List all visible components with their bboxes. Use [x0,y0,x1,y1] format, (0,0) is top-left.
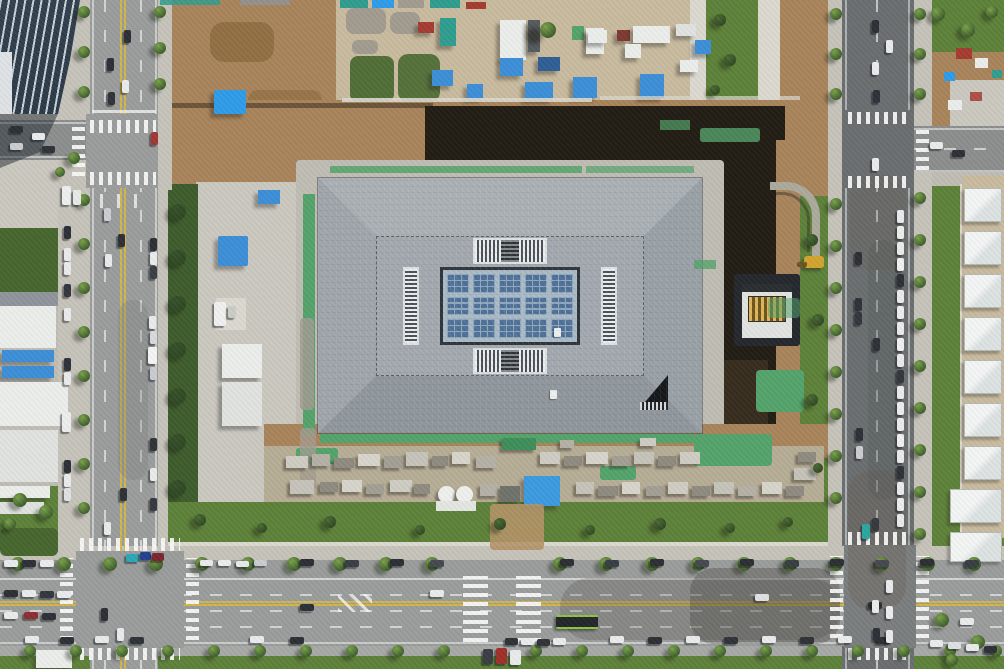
yard-green [0,228,58,292]
street-tree [725,523,735,533]
stack [576,482,594,494]
net-stack [572,26,584,40]
street-tree [806,394,818,406]
netting-patch [768,298,800,318]
netting-patch [296,448,338,464]
east-shed [964,446,1002,480]
rubble-pile [346,8,386,34]
stack [640,438,656,446]
container [430,0,460,8]
netting-patch [660,120,690,130]
blue-tarp [214,90,246,114]
blue-shed [500,58,523,76]
east-shed [964,188,1002,222]
east-shed [964,360,1002,394]
green-patch [350,56,394,102]
netting-patch [600,466,636,480]
east-wall [960,184,964,570]
stack [390,480,412,492]
dirt-mound [248,90,322,120]
container-white [216,298,246,330]
highrise-white-wing [0,52,12,114]
dirt-field-nw [160,0,550,128]
blue-shed [573,77,597,98]
rubble-pile [352,40,378,54]
stack [786,486,804,496]
street-tree [13,493,27,507]
main-building-roof [318,178,702,433]
silo [438,486,455,503]
street-tree [986,6,998,18]
stack [414,484,430,494]
east-side-road [914,126,1004,172]
site-office-white [633,26,670,43]
shed-navy [538,57,560,71]
debris-teal [992,70,1002,78]
blue-shed-laydown [524,476,560,506]
silo [456,486,473,503]
machine-green [502,438,536,450]
laydown-yard [264,446,824,538]
rubble-pile [390,12,420,34]
street-tree [714,14,726,26]
street-tree [39,505,53,519]
street-tree [812,314,824,326]
blue-tarp [258,190,280,204]
trench-shadow-line [163,103,433,108]
container [340,0,368,8]
debris-white [948,100,962,110]
stack [564,456,582,466]
left-road-east-sidewalk [158,0,172,190]
stack [680,452,700,464]
blue-shed [467,84,483,99]
dark-unit [500,486,520,502]
aerial-construction-site-photo [0,0,1004,669]
right-road-south-stub [842,646,914,669]
east-shed [964,317,1002,351]
rubble-row [300,428,316,490]
site-office-white [586,28,604,54]
netting-patch [700,128,760,142]
container-white [222,382,262,426]
stack [658,456,676,466]
site-wall [342,98,592,102]
nw-ground-white [690,0,812,120]
warehouse-white [0,430,58,482]
building-white-panel [0,306,56,348]
street-tree [170,342,186,358]
street-tree [170,480,186,496]
stack [334,458,354,468]
blue-roof-row [2,366,54,378]
container-white [222,344,262,378]
street-tree [540,22,556,38]
street-tree [170,388,186,404]
netting-strip [320,434,694,443]
pit-structure-frame [734,274,800,346]
stack [312,454,330,466]
street-tree [324,516,336,528]
pit-structure-louver [748,296,786,322]
street-tree [783,517,793,527]
patch [214,302,226,326]
shed-white [0,502,44,514]
stack [646,486,664,496]
stack [342,480,362,492]
street-tree [194,514,206,526]
patch [228,306,236,318]
east-shed [964,231,1002,265]
stack [586,452,608,464]
silo-base [436,501,476,511]
staging-ground [336,0,806,118]
east-shed [964,403,1002,437]
stack [290,480,314,494]
stack [480,484,498,496]
stack [622,482,640,494]
container [398,0,424,8]
stack [668,482,688,494]
street-tree [170,204,186,220]
blue-shed [640,74,664,98]
blue-shed [695,40,711,54]
stack [560,440,574,448]
building-frame [0,292,58,306]
stack [598,486,618,496]
street-tree [170,296,186,312]
stack [738,486,756,496]
stack [286,456,308,468]
stack [612,456,630,466]
blue-roof-row [2,350,54,362]
bottom-road-north-sidewalk [0,546,1004,560]
stack [714,482,734,494]
retaining-wall-rib [776,192,810,252]
street-tree [724,54,736,66]
netting-patch [694,434,772,466]
site-office-white [500,20,526,60]
pit-structure-inner [742,284,792,338]
street-tree [710,85,720,95]
street-tree [257,523,267,533]
street-tree [654,518,666,530]
debris-red [956,48,972,59]
east-shed [950,489,1002,523]
netting-strip [303,194,315,434]
left-road-south-stub [90,646,158,669]
stack [794,468,816,480]
dirt-mound [210,22,274,62]
container [372,0,394,8]
excavator-arm [797,262,807,267]
street-tree [813,463,823,473]
machine-teal [440,18,456,46]
debris-blue [944,72,955,81]
stack [366,484,384,494]
street-tree [931,7,945,21]
stack [762,482,782,494]
ne-grass-corner [922,0,1004,56]
stack [540,452,560,464]
stack [798,452,816,462]
green-patch [398,54,440,102]
stack [406,452,428,466]
stack [476,456,496,468]
sheds-ground-east [962,176,1004,580]
grass-slope-south [156,502,850,552]
stack [320,482,338,492]
bottom-road [0,560,1004,646]
dirt-path-to-crossing [490,504,544,550]
site-office-white [676,24,696,36]
street-tree [170,434,186,450]
debris-red [970,92,982,101]
shed-white [588,30,607,43]
blue-shed [525,82,553,100]
netting-strip [586,166,694,173]
debris-white [975,58,988,68]
container-darkred [617,30,630,41]
stack [432,456,448,466]
curved-retaining-wall [770,182,820,258]
shed-white [0,486,50,498]
street-tree [585,525,595,535]
street-tree [494,518,506,530]
street-tree [4,518,16,530]
container [466,2,486,9]
fence-top [240,0,290,5]
stack [634,452,654,464]
site-wall [600,96,800,100]
pit-structure-top [742,284,792,292]
east-shed [964,274,1002,308]
stack [384,456,402,468]
blue-shed [432,70,453,86]
blue-tarp [218,236,248,266]
stack [692,486,710,496]
netting-strip [330,166,582,173]
shed-white [625,44,641,58]
netting-patch [756,370,804,412]
street-tree [170,250,186,266]
shed-white [680,60,698,72]
tower-dark [528,20,540,52]
container-red [418,22,434,33]
stack [452,452,470,464]
street-tree [415,525,425,535]
stack [358,454,380,466]
roof-panel-texture [318,178,702,433]
street-tree [961,23,975,37]
rubble-row [300,318,314,410]
ne-green-strip [706,0,758,112]
west-concrete-strip [196,182,308,562]
east-dirt-zone [688,140,848,470]
